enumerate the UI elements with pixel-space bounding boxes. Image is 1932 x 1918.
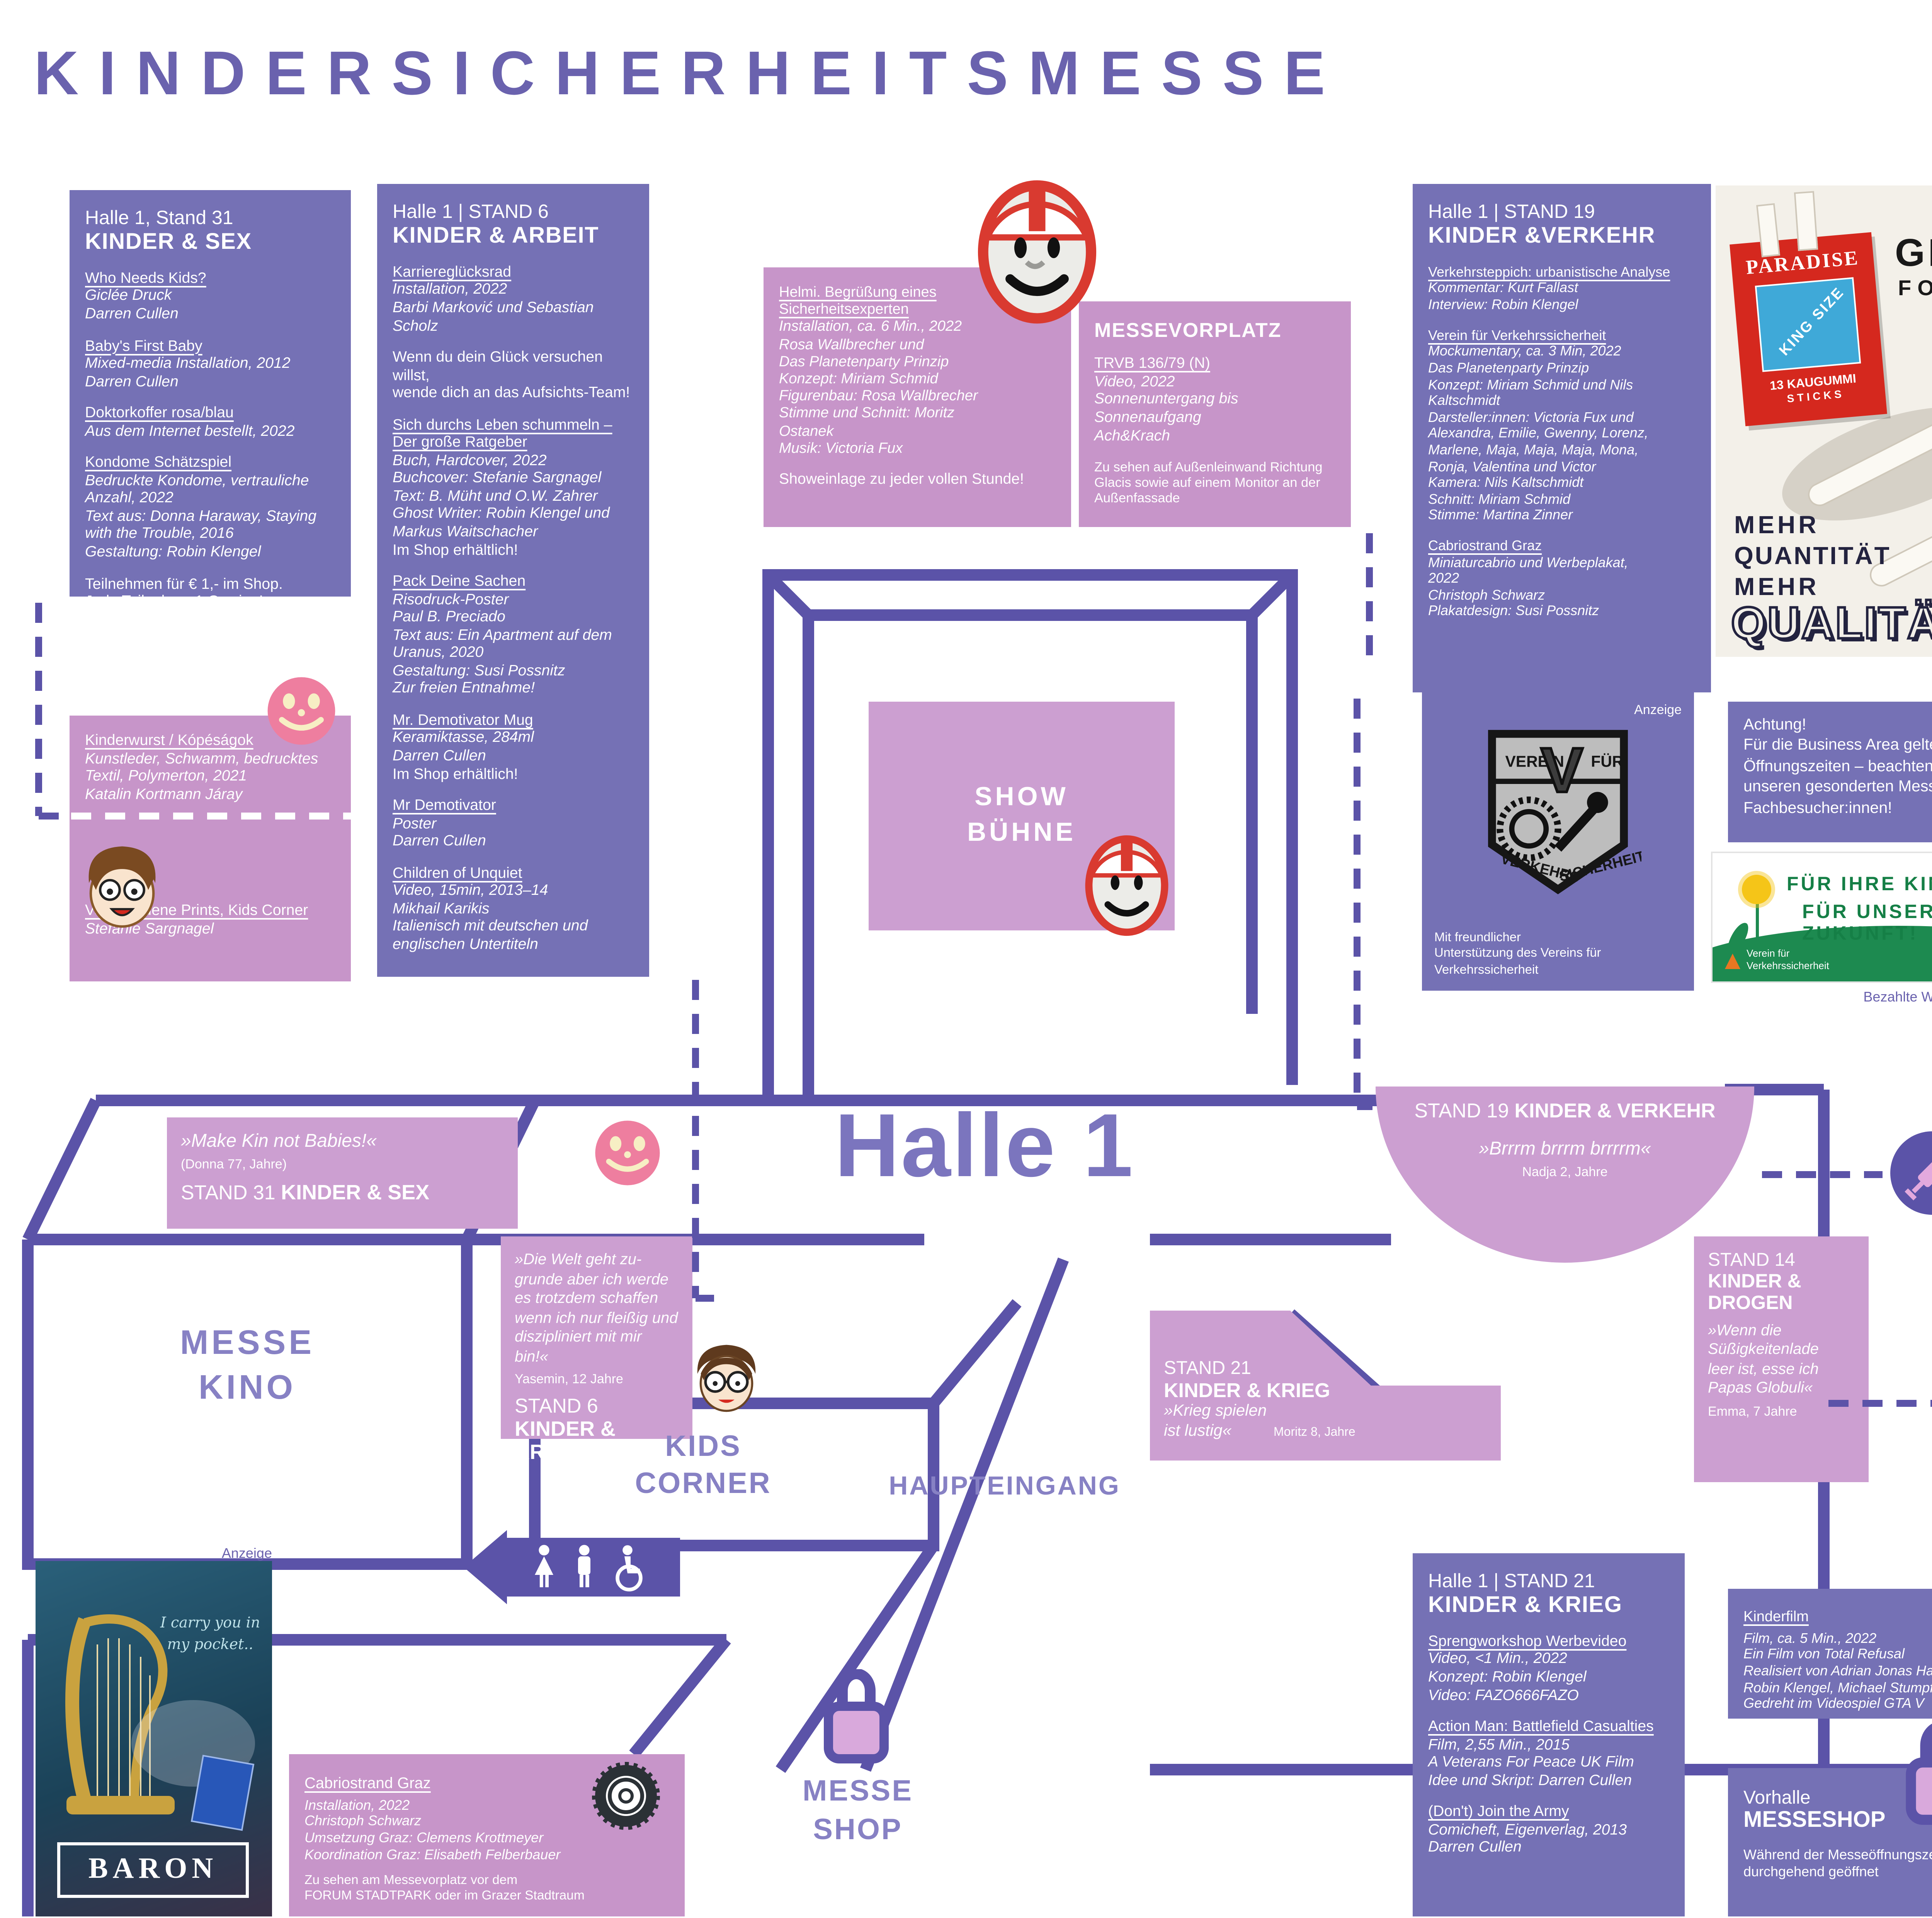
messevorplatz-header: MESSEVORPLATZ	[1094, 318, 1335, 342]
verein-ad-box: Anzeige VEREIN FÜR V VERKEHRS SICHERHEIT…	[1422, 692, 1694, 991]
verein-caption: Mit freundlicher Unterstützung des Verei…	[1434, 930, 1682, 978]
work-title: Action Man: Battlefield Casualties	[1428, 1719, 1654, 1736]
work-title: Helmi. Begrüßung eines Sicherheitsexpert…	[779, 284, 937, 319]
kid-face-glasses-icon	[689, 1338, 764, 1416]
banner-logo-cone	[1725, 954, 1740, 969]
stand6-note: Wenn du dein Glück versuchen willst, wen…	[393, 349, 634, 403]
messevorplatz-box: MESSEVORPLATZ TRVB 136/79 (N) Video, 202…	[1079, 301, 1351, 527]
baron-pack	[191, 1755, 254, 1831]
bezahlte-werbeeinschaltung-label: Bezahlte Werbeeinschaltung	[1824, 989, 1932, 1005]
work-details: Video, 2022 Sonnenuntergang bis Sonnenau…	[1094, 374, 1335, 445]
work-title: TRVB 136/79 (N)	[1094, 356, 1210, 373]
kinderfilm-box: Kinderfilm Film, ca. 5 Min., 2022 Ein Fi…	[1728, 1589, 1932, 1719]
work-title: Mr. Demotivator Mug	[393, 712, 533, 729]
stand-quote-author: Emma, 7 Jahre	[1708, 1403, 1855, 1418]
messeshop-label: MESSESHOP	[1743, 1809, 1932, 1835]
work-details: Buch, Hardcover, 2022 Buchcover: Stefani…	[393, 452, 634, 542]
stand-cat: KINDER & VERKEHR	[1515, 1099, 1716, 1122]
baron-poster: I carry you in my pocket.. BARON	[36, 1561, 272, 1916]
dandelion-flower	[1742, 875, 1771, 904]
cigarette-ad: PARADISE KING SIZE 13 KAUGUMMI S T I C K…	[1716, 185, 1932, 657]
work-details: Poster Darren Cullen	[393, 816, 634, 851]
page-title: KINDERSICHERHEITSMESSE	[34, 40, 1345, 110]
stand-cat: KINDER & DROGEN	[1708, 1270, 1855, 1315]
achtung-box: Achtung! Für die Business Area gelten an…	[1728, 702, 1932, 842]
stand-label: STAND 31	[181, 1181, 281, 1204]
kids-corner-label: KIDS CORNER	[611, 1430, 796, 1503]
ad-headline-2: FORMAT	[1898, 275, 1932, 300]
work-title: Children of Unquiet	[393, 865, 522, 882]
map-stand31: »Make Kin not Babies!« (Donna 77, Jahre)…	[167, 1117, 518, 1229]
work-details: Comicheft, Eigenverlag, 2013 Darren Cull…	[1428, 1822, 1669, 1857]
stand6-category: KINDER & ARBEIT	[393, 224, 634, 250]
work-extra: Im Shop erhältlich!	[393, 766, 634, 784]
pack-label: KING SIZE	[1755, 277, 1861, 372]
vorhalle-label: Vorhalle	[1743, 1787, 1932, 1809]
work-details: Giclée Druck Darren Cullen	[85, 288, 335, 324]
work-details: Film, ca. 5 Min., 2022 Ein Film von Tota…	[1743, 1631, 1932, 1712]
anzeige-label: Anzeige	[1920, 661, 1932, 677]
arrow-head	[464, 1530, 507, 1604]
wc-pictograms	[526, 1542, 665, 1592]
work-title: Pack Deine Sachen	[393, 573, 526, 590]
stand-label: STAND 6	[515, 1394, 598, 1417]
stand-quote-author: (Donna 77, Jahre)	[181, 1156, 504, 1172]
banner-line-2: FÜR UNSERE ZUKUNFT!	[1802, 901, 1932, 944]
ad-line-4: QUALITÄT	[1731, 600, 1932, 651]
anzeige-label: Anzeige	[1434, 702, 1682, 717]
stand-quote: »Brrrm brrrm brrrrm«	[1376, 1138, 1754, 1161]
work-details: Video, <1 Min., 2022 Konzept: Robin Klen…	[1428, 1651, 1669, 1705]
stand21-info-box: Halle 1 | STAND 21 KINDER & KRIEG Spreng…	[1413, 1553, 1685, 1916]
stand-quote: »Wenn die Süßigkeitenlade leer ist, esse…	[1708, 1323, 1855, 1400]
anzeige-label: Anzeige	[179, 1546, 272, 1561]
work-title: Sprengworkshop Werbevideo	[1428, 1633, 1626, 1650]
work-details: Installation, ca. 6 Min., 2022 Rosa Wall…	[779, 319, 1056, 458]
stand-quote-author: Nadja 2, Jahre	[1376, 1164, 1754, 1179]
stand-quote-author: Yasemin, 12 Jahre	[515, 1371, 679, 1386]
work-title: Cabriostrand Graz	[1428, 538, 1542, 553]
work-title: Kinderwurst / Kópéságok	[85, 733, 253, 750]
work-details: Video, 15min, 2013–14 Mikhail Karikis It…	[393, 883, 634, 954]
work-title: Baby's First Baby	[85, 338, 202, 355]
work-details: Installation, 2022 Barbi Marković und Se…	[393, 282, 634, 336]
stand19-category: KINDER &VERKEHR	[1428, 224, 1696, 250]
vorhalle-note: Während der Messeöffnungszeiten durchgeh…	[1743, 1847, 1932, 1880]
vorhalle-messeshop-box: Vorhalle MESSESHOP Während der Messeöffn…	[1728, 1768, 1932, 1916]
pack-kingsize: KING SIZE	[1764, 277, 1861, 372]
stand-cat: KINDER & ARBEIT	[515, 1417, 616, 1464]
work-title: Verein für Verkehrssicherheit	[1428, 327, 1606, 343]
helmi-note: Showeinlage zu jeder vollen Stunde!	[779, 471, 1056, 489]
work-title: Doktorkoffer rosa/blau	[85, 405, 234, 422]
smiley-icon	[266, 675, 337, 746]
shopping-bag-icon	[822, 1669, 890, 1765]
map-stand14: STAND 14 KINDER & DROGEN »Wenn die Süßig…	[1694, 1236, 1869, 1482]
tire-icon	[590, 1760, 662, 1831]
stand21-category: KINDER & KRIEG	[1428, 1593, 1669, 1619]
cabriostrand-note: Zu sehen am Messevorplatz vor dem FORUM …	[304, 1874, 669, 1904]
cigarette-2	[1794, 191, 1818, 251]
stand31-category: KINDER & SEX	[85, 230, 335, 256]
smiley-icon	[594, 1119, 662, 1187]
ad-line-2: QUANTITÄT	[1734, 544, 1891, 572]
stand19-info-box: Halle 1 | STAND 19 KINDER &VERKEHR Verke…	[1413, 184, 1711, 692]
ad-line-3: MEHR	[1734, 575, 1819, 603]
work-title: Mr Demotivator	[393, 797, 496, 814]
messevorplatz-note: Zu sehen auf Außenleinwand Richtung Glac…	[1094, 459, 1335, 506]
work-title: Cabriostrand Graz	[304, 1776, 431, 1793]
shopping-bag-icon	[1904, 1722, 1932, 1827]
stand19-hall: Halle 1 | STAND 19	[1428, 201, 1696, 224]
work-details: Keramiktasse, 284ml Darren Cullen	[393, 730, 634, 766]
stand-quote-author: Moritz 8, Jahre	[1274, 1425, 1355, 1439]
baron-wordmark: BARON	[57, 1842, 249, 1898]
work-details: Mixed-media Installation, 2012 Darren Cu…	[85, 355, 335, 391]
work-extra: Im Shop erhältlich!	[393, 542, 634, 559]
restroom-arrow-sign	[464, 1530, 680, 1604]
work-title: Sich durchs Leben schummeln – Der große …	[393, 417, 612, 452]
stand31-note: Teilnehmen für € 1,- im Shop. Jede Teiln…	[85, 576, 335, 611]
stand31-info-box: Halle 1, Stand 31 KINDER & SEX Who Needs…	[70, 190, 351, 597]
stand-label: STAND 14	[1708, 1249, 1855, 1270]
work-title: Kinderfilm	[1743, 1609, 1809, 1626]
haupteingang-label: HAUPTEINGANG	[858, 1471, 1151, 1501]
work-title: Verkehrsteppich: urbanistische Analyse	[1428, 264, 1670, 279]
cigarette-pack: PARADISE KING SIZE 13 KAUGUMMI S T I C K…	[1730, 232, 1887, 426]
stand-quote: »Die Welt geht zu- grunde aber ich werde…	[515, 1252, 679, 1368]
kindersicherheitsmesse-poster: KINDERSICHERHEITSMESSE 2022 Halle 1, Sta…	[0, 0, 1932, 1917]
stand-quote: »Krieg spielen ist lustig«	[1164, 1402, 1267, 1442]
helmet-smiley-icon	[974, 179, 1100, 325]
work-title: Karriereglücksrad	[393, 264, 511, 281]
helmet-smiley-icon	[1082, 835, 1172, 937]
work-title: Kondome Schätzspiel	[85, 455, 231, 472]
work-details: Mockumentary, ca. 3 Min, 2022 Das Planet…	[1428, 343, 1696, 524]
stand6-hall: Halle 1 | STAND 6	[393, 201, 634, 224]
banner-logo-text: Verein für Verkehrssicherheit	[1747, 950, 1829, 974]
work-details: Risodruck-Poster Paul B. Preciado Text a…	[393, 591, 634, 698]
map-stand6: »Die Welt geht zu- grunde aber ich werde…	[501, 1236, 692, 1439]
work-title: Who Needs Kids?	[85, 270, 206, 287]
work-details: Bedruckte Kondome, vertrauliche Anzahl, …	[85, 473, 335, 562]
messe-shop-label: MESSE SHOP	[773, 1774, 943, 1851]
banner-line-1: FÜR IHRE KINDER,	[1787, 873, 1932, 895]
halle1-label: Halle 1	[835, 1094, 1236, 1198]
ad-headline-1: GROSS	[1895, 232, 1932, 277]
syringe-icon	[1887, 1128, 1932, 1218]
work-details: Kunstleder, Schwamm, bedrucktes Textil, …	[85, 750, 335, 804]
kid-face-icon	[77, 838, 167, 933]
work-details: Miniaturcabrio und Werbeplakat, 2022 Chr…	[1428, 554, 1696, 620]
work-title: (Don't) Join the Army	[1428, 1804, 1569, 1821]
work-details: Film, 2,55 Min., 2015 A Veterans For Pea…	[1428, 1736, 1669, 1790]
ad-line-1: MEHR	[1734, 513, 1819, 541]
messe-kino-label: MESSE KINO	[155, 1321, 340, 1410]
stand21-hall: Halle 1 | STAND 21	[1428, 1570, 1669, 1593]
verein-emblem: VEREIN FÜR V VERKEHRS SICHERHEIT	[1475, 723, 1641, 921]
svg-text:FÜR: FÜR	[1591, 753, 1623, 770]
work-details: Aus dem Internet bestellt, 2022	[85, 423, 335, 441]
stand31-hall: Halle 1, Stand 31	[85, 207, 335, 230]
stand-cat: KINDER & SEX	[281, 1181, 429, 1204]
show-buehne-label: SHOW BÜHNE	[967, 780, 1076, 852]
zukunft-banner: FÜR IHRE KINDER, FÜR UNSERE ZUKUNFT! Ver…	[1711, 852, 1932, 983]
baron-tagline: I carry you in my pocket..	[156, 1614, 264, 1658]
stand-label: STAND 19	[1414, 1099, 1514, 1122]
stand-quote: »Make Kin not Babies!«	[181, 1130, 504, 1153]
svg-text:V: V	[1541, 735, 1583, 806]
stand6-info-box: Halle 1 | STAND 6 KINDER & ARBEIT Karrie…	[377, 184, 649, 977]
work-details: Kommentar: Kurt Fallast Interview: Robin…	[1428, 281, 1696, 313]
